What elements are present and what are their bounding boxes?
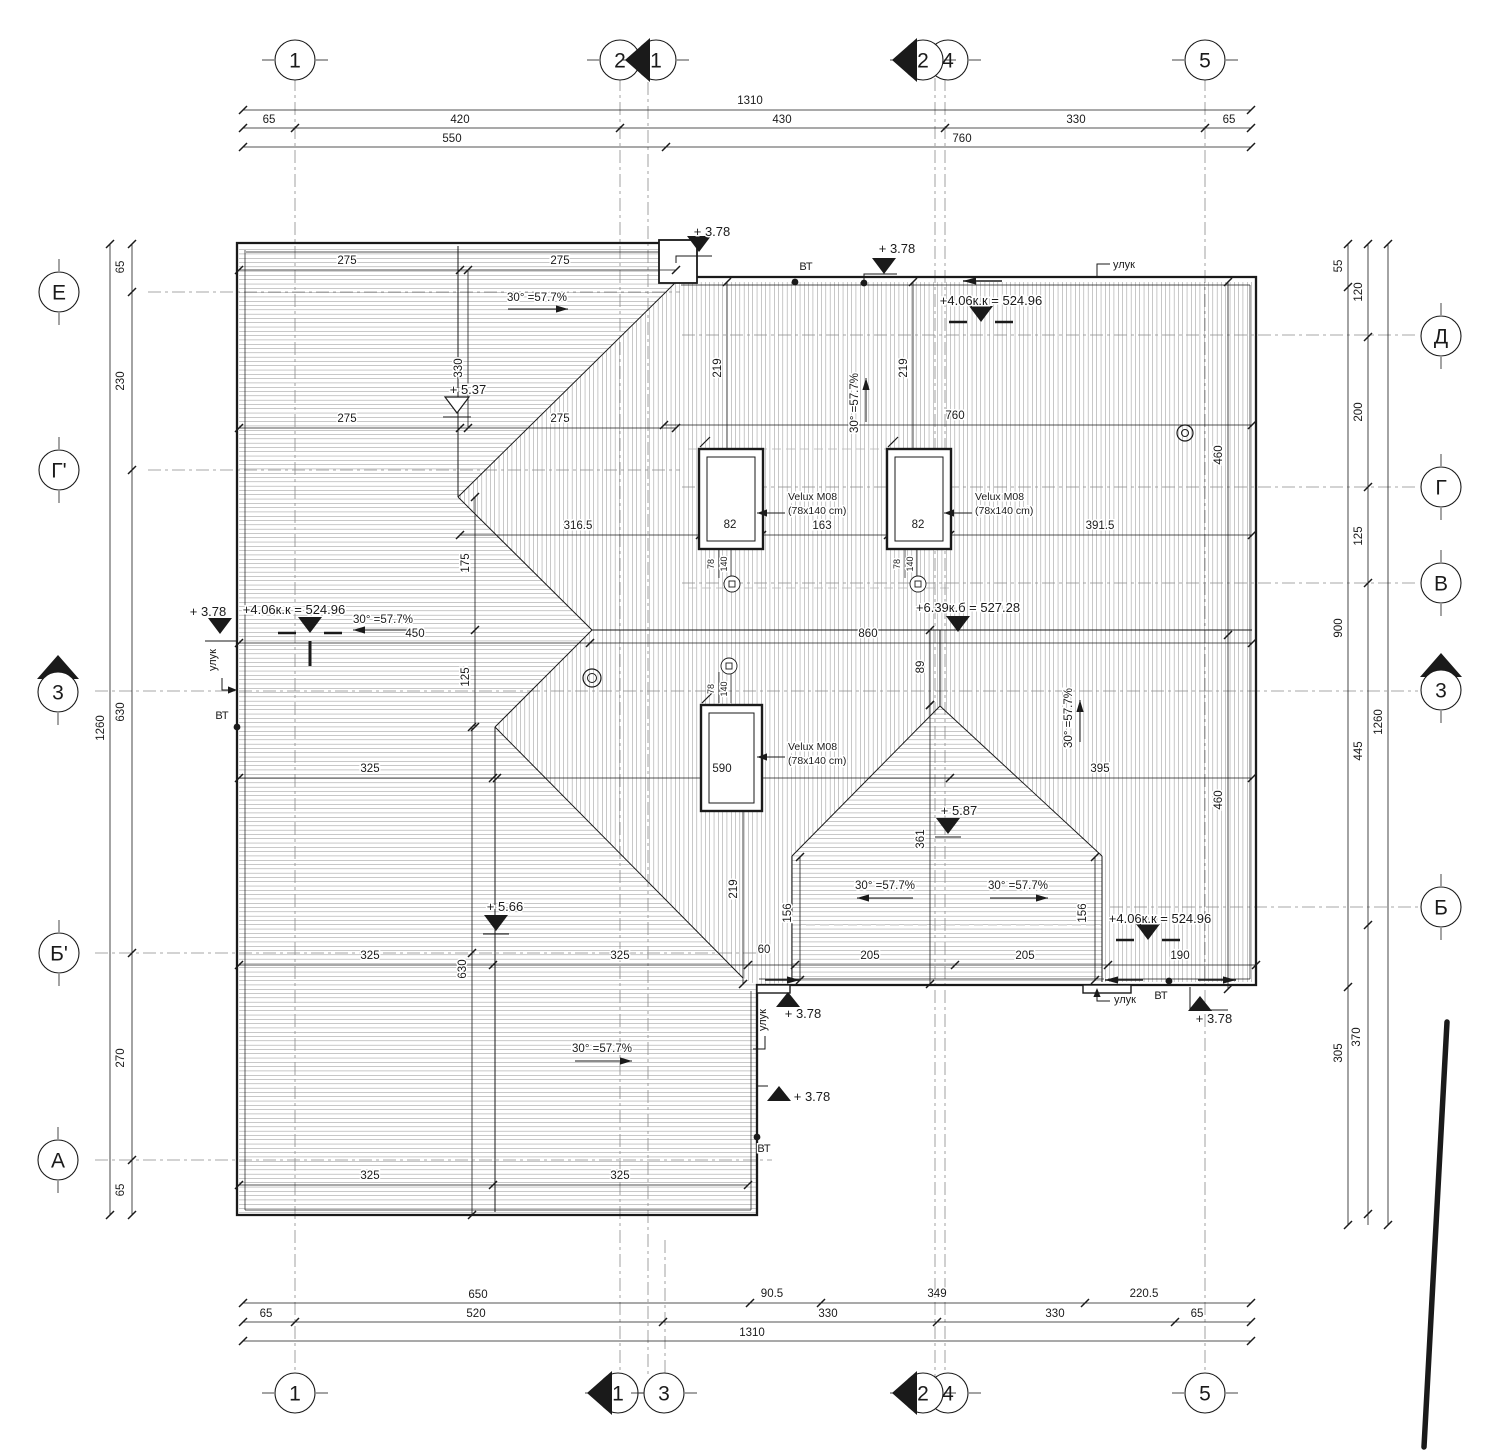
bubble-label: 5: [1199, 1383, 1211, 1406]
note-text: (78x140 cm): [788, 505, 846, 517]
dimension-text: 140: [719, 556, 729, 571]
bubble-label: Б': [50, 943, 68, 966]
elevation-mark: + 3.78: [776, 992, 821, 1021]
note-text: ВТ: [757, 1143, 771, 1155]
dimension-text: 1310: [739, 1327, 765, 1339]
dimension-text: 219: [712, 358, 724, 377]
elevation-text: +4.06к.к = 524.96: [940, 293, 1042, 308]
note-text: улук: [1113, 259, 1135, 271]
grid-bubble-А: А: [38, 1127, 78, 1193]
elevation-text: + 3.78: [879, 241, 916, 256]
grid-bubble-1: 1: [262, 1373, 328, 1413]
thick-diagonal-line: [1424, 1022, 1447, 1447]
grid-bubble-Б': Б': [39, 920, 79, 986]
slope-label: 30° =57.7%: [855, 880, 915, 902]
bubble-label: Е: [52, 282, 66, 305]
slope-text: 30° =57.7%: [849, 373, 861, 433]
grid-bubble-В: В: [1421, 550, 1461, 616]
note-text: (78x140 cm): [975, 505, 1033, 517]
dimension-text: 460: [1213, 445, 1225, 464]
bubble-label: 1: [289, 50, 301, 73]
bubble-label: Г': [51, 460, 66, 483]
dimension-text: 430: [772, 114, 791, 126]
slope-text: 30° =57.7%: [1063, 688, 1075, 748]
roof-plan-drawing: + 3.78+ 3.78+4.06к.к = 524.96+ 3.78+4.06…: [0, 0, 1500, 1451]
dimension-text: 140: [905, 556, 915, 571]
dimension-text: 90.5: [761, 1288, 783, 1300]
dimension-text: 1260: [95, 715, 107, 741]
dimension-text: 330: [453, 358, 465, 377]
elevation-triangle-icon: [767, 1086, 791, 1101]
grid-bubble-5: 5: [1172, 40, 1238, 80]
dimension-text: 65: [115, 261, 127, 274]
dimension-text: 370: [1351, 1027, 1363, 1046]
elevation-text: + 3.78: [794, 1089, 831, 1104]
dimension-text: 325: [610, 1170, 629, 1182]
elevation-triangle-icon: [872, 258, 896, 274]
dimension-text: 55: [1333, 260, 1345, 273]
grid-bubble-Б: Б: [1421, 874, 1461, 940]
dimension-text: 156: [1077, 903, 1089, 922]
dimension-text: 305: [1333, 1043, 1345, 1062]
dimension-text: 219: [728, 879, 740, 898]
grid-bubble-Е: Е: [39, 259, 79, 325]
bubble-label: 1: [289, 1383, 301, 1406]
dimension-text: 140: [719, 681, 729, 696]
dimension-text: 275: [550, 255, 569, 267]
dimension-text: 330: [818, 1308, 837, 1320]
section-arrow-icon: [892, 1371, 917, 1415]
bubble-label: Д: [1434, 326, 1448, 349]
dimension-text: 630: [457, 959, 469, 978]
bubble-label: 3: [52, 682, 64, 705]
eave-board: [1083, 985, 1131, 993]
note-text: Velux M08: [788, 741, 837, 753]
dimension-text: 78: [706, 559, 716, 569]
note-text: (78x140 cm): [788, 755, 846, 767]
dimension-text: 125: [460, 667, 472, 686]
bubble-label: 3: [1435, 680, 1447, 703]
elevation-triangle-icon: [1188, 996, 1212, 1011]
dimension-text: 349: [927, 1288, 946, 1300]
dimension-text: 450: [405, 628, 424, 640]
dimension-text: 325: [360, 950, 379, 962]
grid-bubble-Д: Д: [1421, 303, 1461, 369]
dimension-text: 78: [892, 559, 902, 569]
dimension-text: 65: [1223, 114, 1236, 126]
elevation-mark: + 3.78: [190, 604, 232, 634]
chimney: [659, 240, 697, 283]
slope-label: 30° =57.7%: [988, 880, 1048, 902]
grid-bubble-Г: Г: [1421, 454, 1461, 520]
elevation-text: +6.39к.б = 527.28: [916, 600, 1020, 615]
note-text: улук: [207, 649, 219, 671]
roof-window-inner: [709, 713, 754, 803]
bubble-label: 2: [917, 1383, 929, 1406]
elevation-text: + 5.37: [450, 382, 487, 397]
dimension-text: 550: [442, 133, 461, 145]
slope-label: 30° =57.7%: [572, 1043, 632, 1065]
dimension-text: 760: [952, 133, 971, 145]
dimension-text: 1310: [737, 95, 763, 107]
elevation-text: + 5.66: [487, 899, 524, 914]
note-text: Velux M08: [975, 491, 1024, 503]
slope-text: 30° =57.7%: [988, 880, 1048, 892]
dimension-text: 82: [724, 519, 737, 531]
dimension-text: 520: [466, 1308, 485, 1320]
dimension-text: 391.5: [1086, 520, 1115, 532]
dimension-text: 230: [115, 371, 127, 390]
dimension-text: 460: [1213, 790, 1225, 809]
dimension-text: 156: [782, 903, 794, 922]
dimension-text: 205: [1015, 950, 1034, 962]
elevation-triangle-icon: [208, 618, 232, 634]
dimension-text: 860: [858, 628, 877, 640]
bubble-label: В: [1434, 573, 1448, 596]
grid-bubble-3: 3: [1420, 653, 1462, 723]
note-text: улук: [1114, 994, 1136, 1006]
dimension-text: 325: [610, 950, 629, 962]
dimension-text: 205: [860, 950, 879, 962]
bubble-label: Б: [1434, 897, 1448, 920]
dimension-text: 420: [450, 114, 469, 126]
dimension-text: 361: [915, 829, 927, 848]
dimension-text: 270: [115, 1048, 127, 1067]
window-symbol-icon: [724, 576, 740, 592]
vent-dot-icon: [792, 279, 799, 286]
grid-bubble-3: 3: [37, 655, 79, 725]
leader-line: [1097, 264, 1110, 277]
dimension-text: 1260: [1373, 709, 1385, 735]
dimension-text: 82: [912, 519, 925, 531]
elevation-triangle-icon: [776, 992, 800, 1007]
elevation-text: +4.06к.к = 524.96: [243, 602, 345, 617]
dimension-text: 89: [915, 661, 927, 674]
dimension-text: 65: [260, 1308, 273, 1320]
elevation-text: + 5.87: [941, 803, 978, 818]
dimension-text: 760: [945, 410, 964, 422]
drawing-sheet: + 3.78+ 3.78+4.06к.к = 524.96+ 3.78+4.06…: [0, 0, 1500, 1451]
dimension-text: 200: [1353, 402, 1365, 421]
bubble-label: 2: [614, 50, 626, 73]
elevation-text: + 3.78: [190, 604, 227, 619]
window-symbol-icon: [910, 576, 926, 592]
grid-bubble-5: 5: [1172, 1373, 1238, 1413]
elevation-text: + 3.78: [1196, 1011, 1233, 1026]
dimension-text: 190: [1170, 950, 1189, 962]
dimension-text: 275: [337, 413, 356, 425]
eave-board: [757, 985, 790, 993]
elevation-mark: + 3.78: [1188, 996, 1232, 1026]
elevation-text: +4.06к.к = 524.96: [1109, 911, 1211, 926]
dimension-text: 60: [758, 944, 771, 956]
dimension-text: 275: [550, 413, 569, 425]
bubble-label: 1: [612, 1383, 624, 1406]
dimension-text: 120: [1353, 282, 1365, 301]
elevation-mark: + 3.78: [767, 1086, 830, 1104]
dimension-text: 395: [1090, 763, 1109, 775]
slope-text: 30° =57.7%: [855, 880, 915, 892]
vent-dot-icon: [1166, 978, 1173, 985]
dimension-text: 220.5: [1130, 1288, 1159, 1300]
vent-dot-icon: [754, 1134, 761, 1141]
note-text: ВТ: [1154, 990, 1168, 1002]
dimension-text: 175: [460, 553, 472, 572]
grid-bubble-3: 3: [631, 1373, 697, 1413]
grid-bubble-Г': Г': [39, 437, 79, 503]
window-symbol-icon: [721, 658, 737, 674]
dimension-text: 650: [468, 1289, 487, 1301]
dimension-text: 219: [898, 358, 910, 377]
dimension-text: 275: [337, 255, 356, 267]
bubble-label: А: [51, 1150, 65, 1173]
section-arrow-icon: [892, 38, 917, 82]
bubble-label: 5: [1199, 50, 1211, 73]
dimension-text: 330: [1066, 114, 1085, 126]
elevation-mark: + 3.78: [872, 241, 915, 274]
dimension-text: 65: [115, 1184, 127, 1197]
bubble-label: 4: [942, 50, 954, 73]
dimension-text: 325: [360, 763, 379, 775]
elevation-text: + 3.78: [694, 224, 731, 239]
arrow-head-icon: [228, 686, 237, 693]
dimension-text: 125: [1353, 526, 1365, 545]
grid-bubble-1: 1: [262, 40, 328, 80]
vent-dot-icon: [234, 724, 241, 731]
dimension-text: 325: [360, 1170, 379, 1182]
bubble-label: 4: [942, 1383, 954, 1406]
bubble-label: 3: [658, 1383, 670, 1406]
slope-text: 30° =57.7%: [572, 1043, 632, 1055]
dimension-text: 445: [1353, 741, 1365, 760]
elevation-text: + 3.78: [785, 1006, 822, 1021]
dimension-text: 900: [1333, 618, 1345, 637]
section-arrow-icon: [587, 1371, 612, 1415]
bubble-label: Г: [1435, 477, 1446, 500]
dimension-text: 65: [1191, 1308, 1204, 1320]
note-text: Velux M08: [788, 491, 837, 503]
dimension-text: 163: [812, 520, 831, 532]
dimension-text: 330: [1045, 1308, 1064, 1320]
slope-text: 30° =57.7%: [507, 292, 567, 304]
slope-text: 30° =57.7%: [353, 614, 413, 626]
bubble-label: 1: [650, 50, 662, 73]
dimension-text: 590: [712, 763, 731, 775]
dimension-text: 65: [263, 114, 276, 126]
note-text: улук: [757, 1009, 769, 1031]
dimension-text: 316.5: [564, 520, 593, 532]
dimension-text: 78: [706, 684, 716, 694]
note-text: ВТ: [215, 710, 229, 722]
bubble-label: 2: [917, 50, 929, 73]
dimension-text: 630: [115, 702, 127, 721]
note-text: ВТ: [799, 261, 813, 273]
